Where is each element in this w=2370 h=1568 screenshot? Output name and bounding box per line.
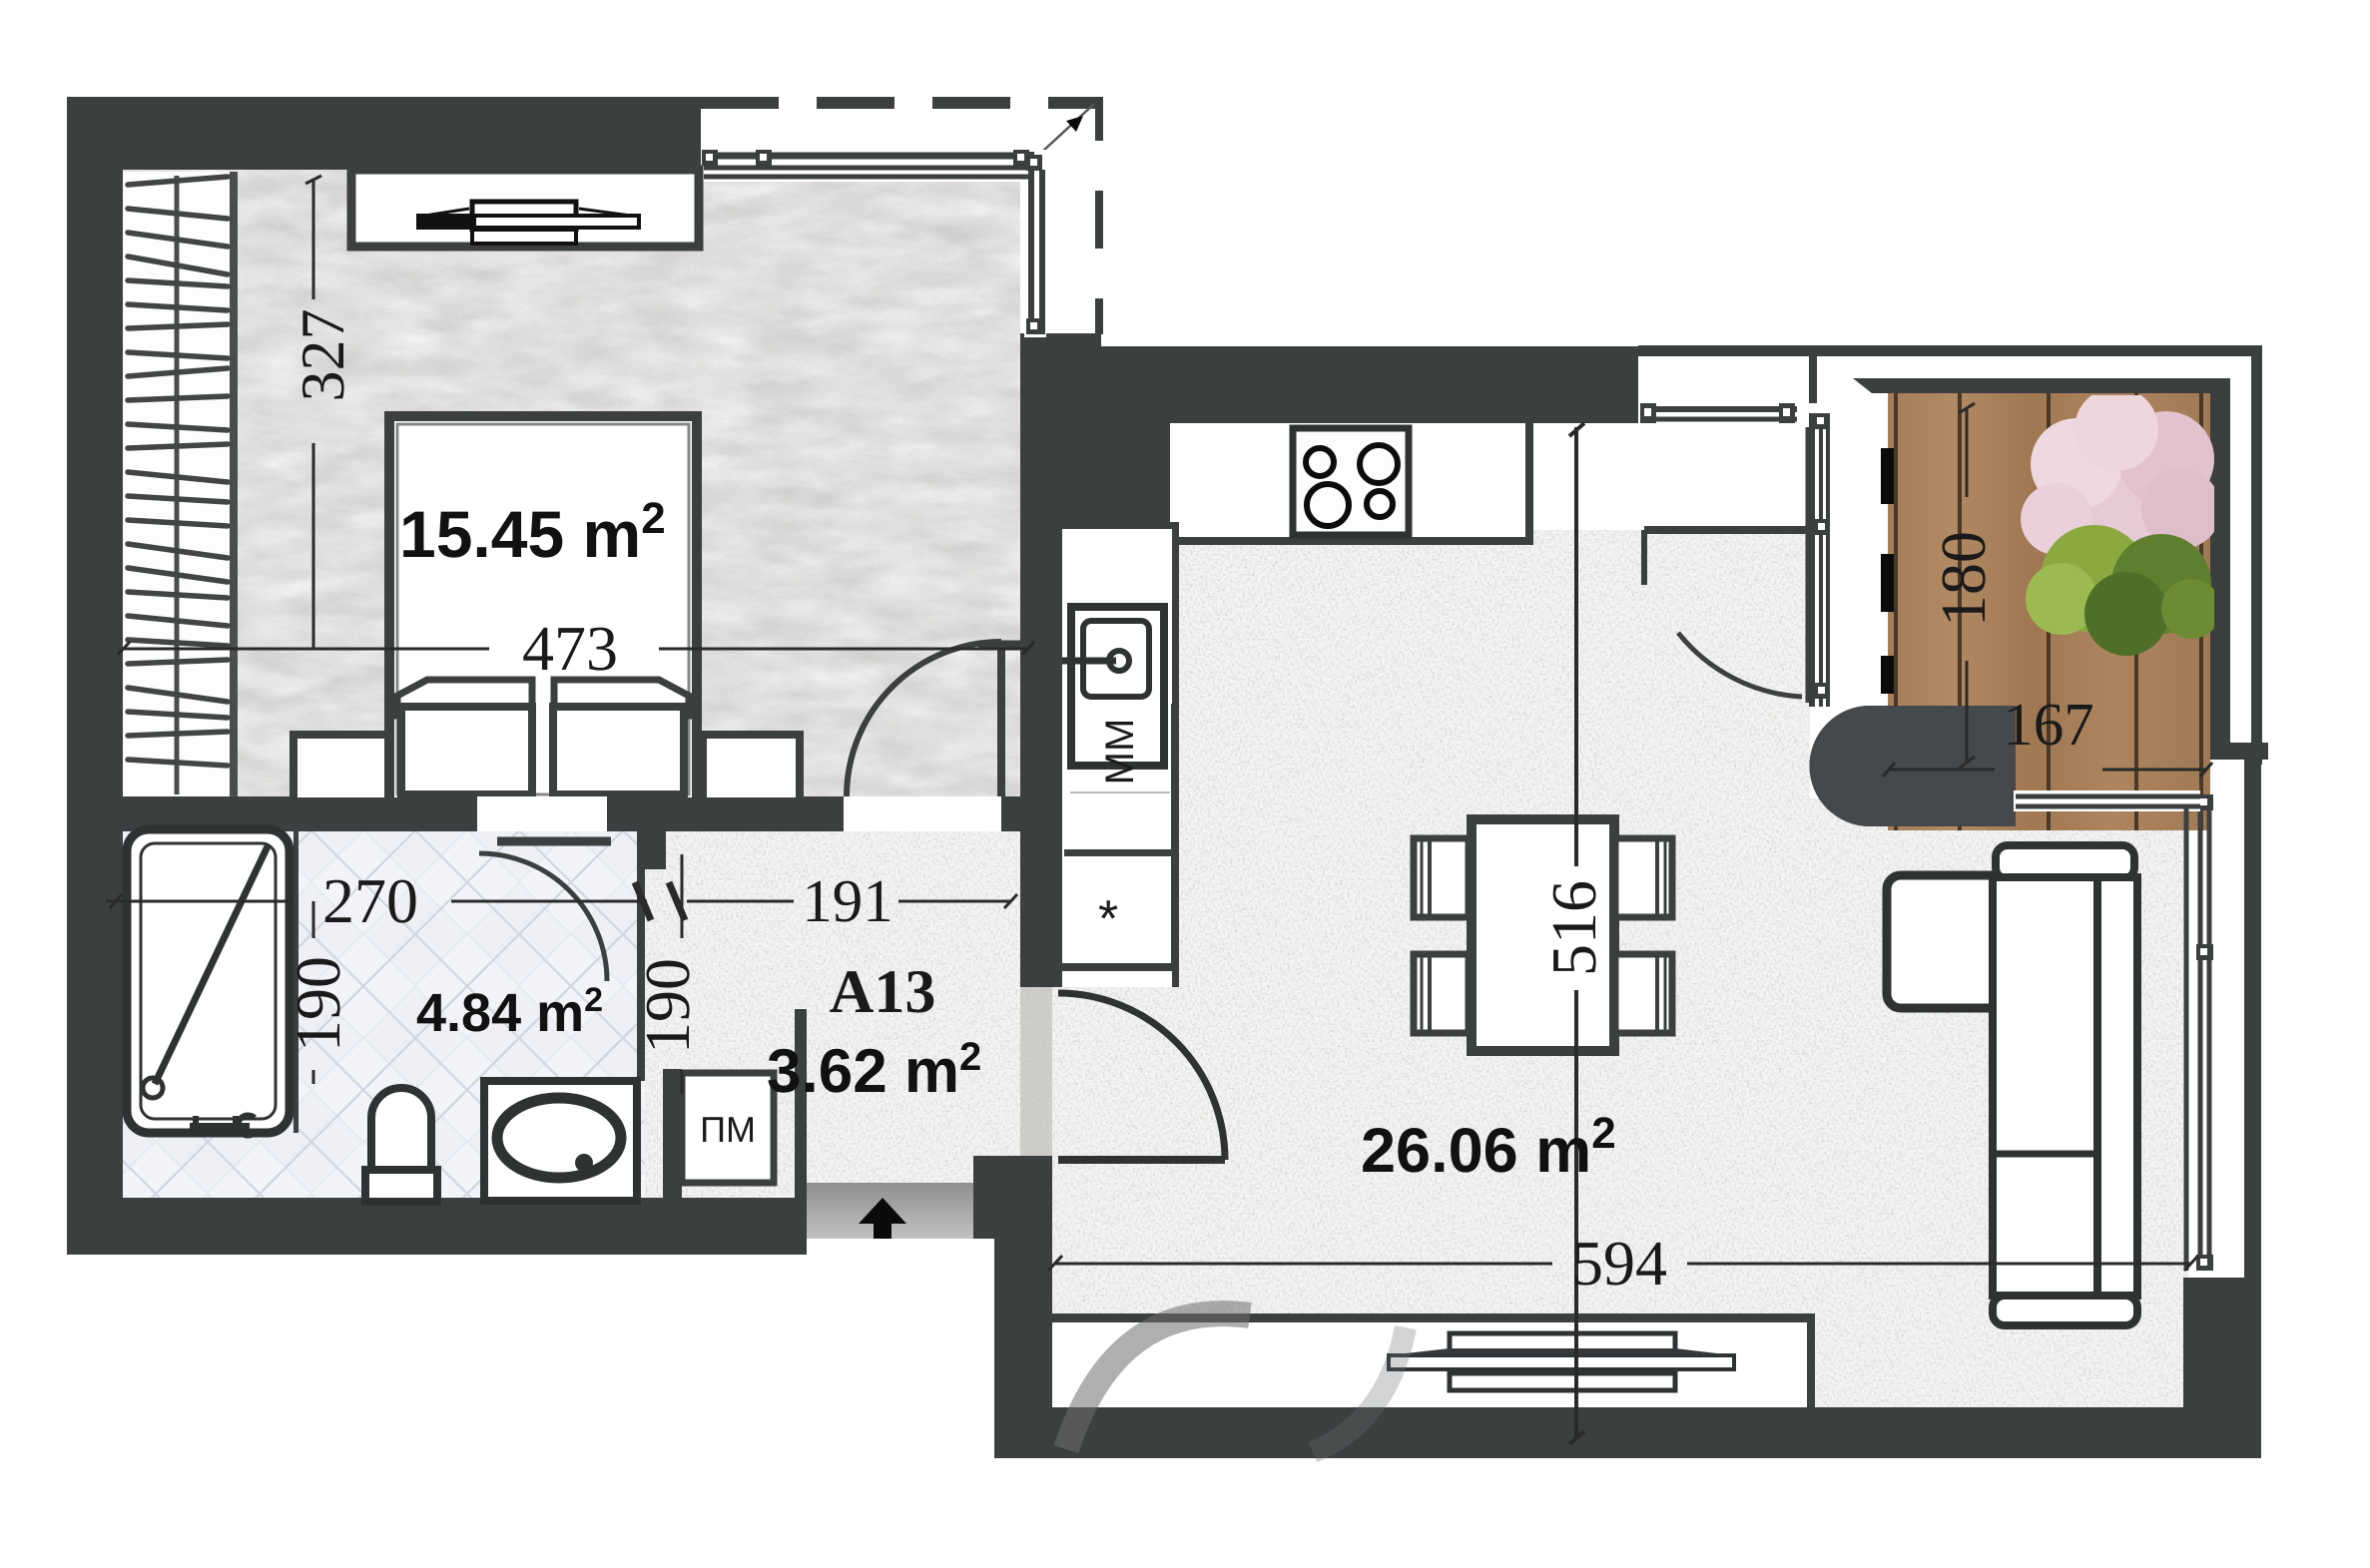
svg-text:327: 327	[290, 309, 357, 402]
svg-text:3.62 m2: 3.62 m2	[767, 1035, 981, 1106]
svg-text:*: *	[1098, 890, 1118, 948]
svg-text:190: 190	[632, 958, 703, 1054]
svg-text:516: 516	[1538, 880, 1609, 976]
svg-text:270: 270	[322, 865, 418, 936]
svg-text:A13: A13	[830, 958, 936, 1026]
svg-text:15.45 m2: 15.45 m2	[399, 494, 666, 571]
svg-text:180: 180	[1928, 531, 1999, 627]
svg-text:594: 594	[1571, 1228, 1667, 1299]
svg-text:167: 167	[2003, 692, 2094, 759]
svg-text:473: 473	[522, 613, 618, 684]
svg-text:4.84 m2: 4.84 m2	[416, 981, 603, 1043]
svg-text:191: 191	[802, 868, 893, 935]
svg-text:190: 190	[283, 956, 353, 1052]
svg-text:26.06 m2: 26.06 m2	[1361, 1109, 1616, 1186]
svg-text:MM: MM	[1098, 719, 1142, 785]
svg-text:ПМ: ПМ	[700, 1109, 756, 1150]
